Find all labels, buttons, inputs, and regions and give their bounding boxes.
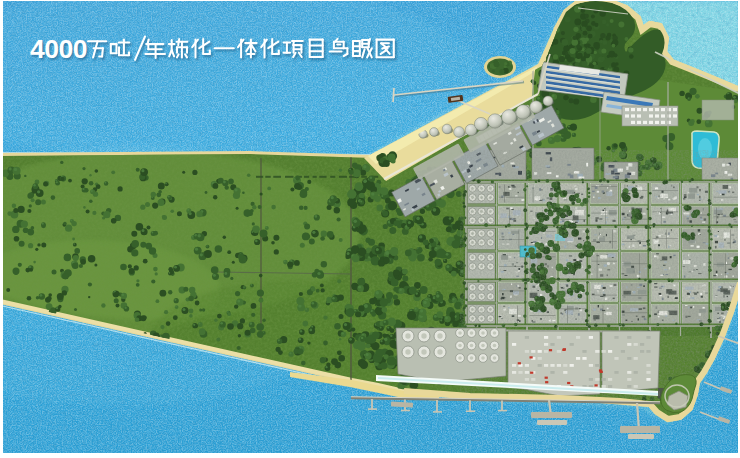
- svg-text:4000: 4000: [30, 34, 87, 64]
